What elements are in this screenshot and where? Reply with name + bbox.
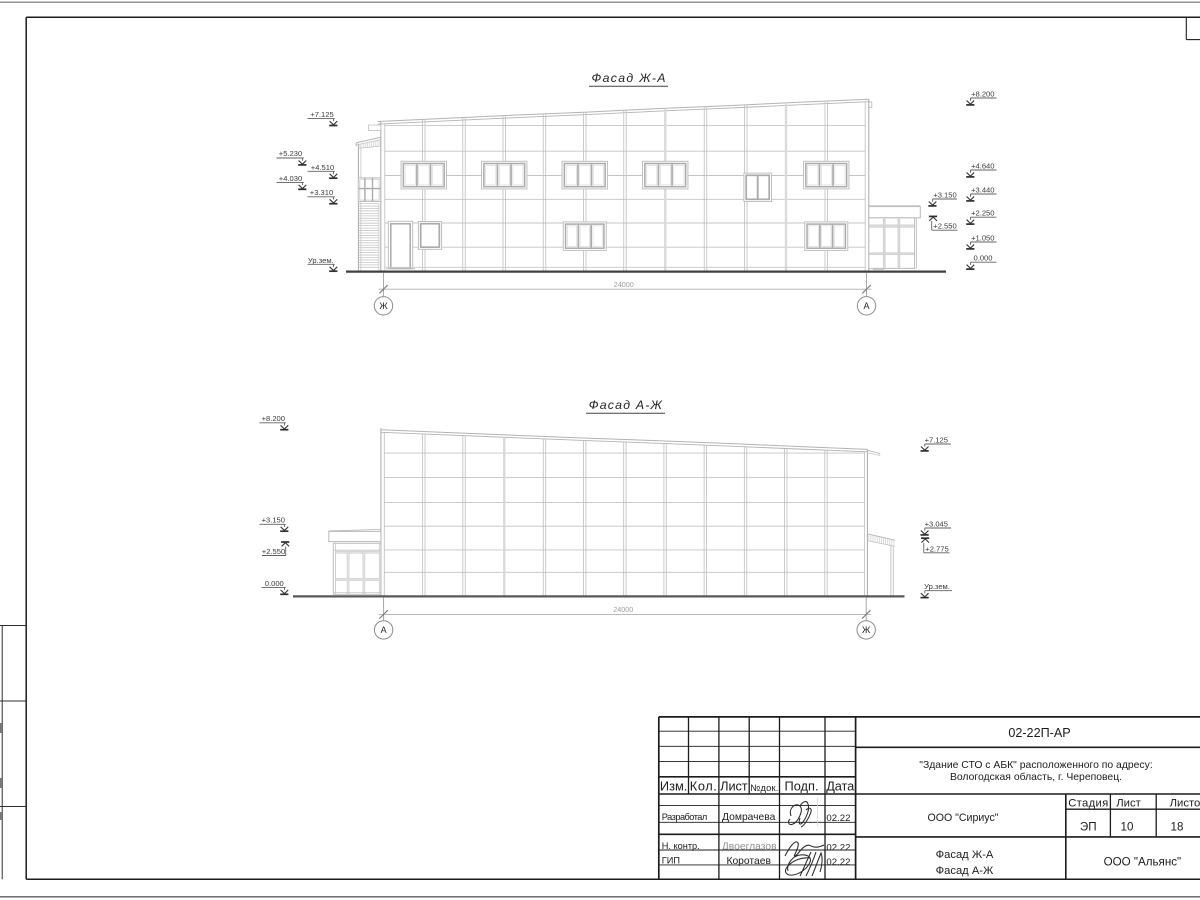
svg-text:24000: 24000 — [613, 605, 633, 614]
svg-text:02-22П-АР: 02-22П-АР — [1008, 726, 1070, 740]
svg-text:+7.125: +7.125 — [310, 110, 333, 119]
svg-text:Дата: Дата — [826, 779, 855, 794]
svg-text:Листов: Листов — [1170, 798, 1200, 810]
svg-text:02.22: 02.22 — [826, 857, 850, 868]
svg-text:10: 10 — [1121, 820, 1134, 833]
svg-text:ГИП: ГИП — [662, 856, 680, 866]
svg-text:"Здание СТО с АБК" расположенн: "Здание СТО с АБК" расположенного по адр… — [919, 760, 1152, 771]
svg-text:+3.310: +3.310 — [310, 188, 333, 197]
svg-text:+3.150: +3.150 — [933, 191, 956, 200]
svg-text:18: 18 — [1171, 820, 1184, 833]
svg-text:+4.030: +4.030 — [279, 174, 302, 183]
svg-text:Коротаев: Коротаев — [726, 856, 771, 867]
svg-text:№док.: №док. — [750, 782, 778, 793]
svg-text:+2.550: +2.550 — [933, 222, 956, 231]
svg-text:А: А — [381, 625, 387, 635]
svg-text:Двоеглазов: Двоеглазов — [722, 841, 777, 852]
svg-text:Н. контр.: Н. контр. — [662, 841, 700, 851]
svg-text:Фасад Ж-А: Фасад Ж-А — [592, 71, 666, 85]
svg-text:+2.775: +2.775 — [925, 544, 948, 553]
svg-text:Подп.: Подп. — [785, 779, 819, 794]
svg-text:02.22: 02.22 — [826, 842, 850, 853]
svg-text:А: А — [863, 301, 869, 311]
svg-text:ООО "Сириус": ООО "Сириус" — [927, 812, 998, 824]
svg-text:0.000: 0.000 — [973, 253, 992, 262]
svg-text:+4.640: +4.640 — [971, 161, 994, 170]
svg-text:ООО "Альянс": ООО "Альянс" — [1104, 856, 1182, 869]
svg-text:Домрачева: Домрачева — [722, 812, 776, 823]
svg-text:Стадия: Стадия — [1068, 798, 1108, 810]
svg-text:Разработал: Разработал — [662, 812, 708, 822]
svg-text:ЭП: ЭП — [1080, 820, 1097, 833]
svg-text:+8.200: +8.200 — [971, 89, 994, 98]
svg-text:+3.440: +3.440 — [971, 185, 994, 194]
svg-text:Вологодская область, г. Черепо: Вологодская область, г. Череповец. — [950, 771, 1122, 783]
svg-text:Лист: Лист — [1116, 798, 1141, 810]
svg-text:+2.250: +2.250 — [971, 209, 994, 218]
svg-text:Ур.зем.: Ур.зем. — [924, 582, 950, 591]
svg-text:+5.230: +5.230 — [279, 149, 302, 158]
svg-text:+3.045: +3.045 — [925, 519, 948, 528]
svg-text:Изм.: Изм. — [660, 779, 688, 794]
svg-text:+8.200: +8.200 — [262, 414, 285, 423]
svg-text:Ур.зем.: Ур.зем. — [308, 256, 334, 265]
svg-text:Фасад А-Ж: Фасад А-Ж — [589, 398, 663, 412]
svg-text:0.000: 0.000 — [265, 579, 284, 588]
svg-text:+3.150: +3.150 — [262, 516, 285, 525]
svg-text:Фасад Ж-А: Фасад Ж-А — [936, 849, 994, 861]
svg-text:+4.510: +4.510 — [311, 163, 334, 172]
svg-text:Ж: Ж — [379, 301, 388, 311]
svg-text:Кол.: Кол. — [690, 779, 717, 794]
svg-text:Лист: Лист — [720, 779, 748, 794]
svg-text:+1.050: +1.050 — [971, 233, 994, 242]
svg-text:+7.125: +7.125 — [925, 435, 948, 444]
svg-text:Фасад А-Ж: Фасад А-Ж — [936, 865, 994, 877]
svg-text:02.22: 02.22 — [826, 813, 850, 824]
svg-text:24000: 24000 — [614, 280, 634, 289]
svg-text:+2.550: +2.550 — [262, 547, 285, 556]
svg-text:Ж: Ж — [862, 625, 871, 635]
